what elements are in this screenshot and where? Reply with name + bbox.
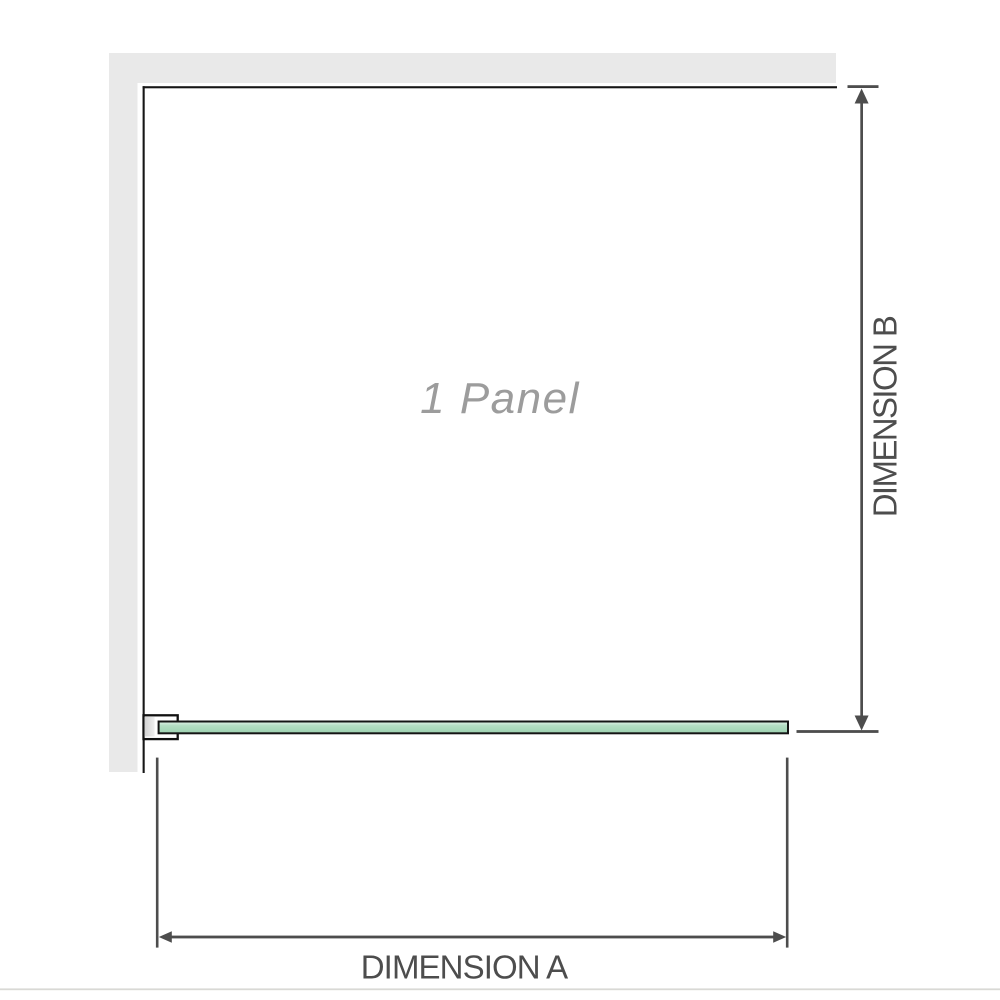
svg-text:DIMENSION B: DIMENSION B xyxy=(866,316,903,517)
svg-text:1 Panel: 1 Panel xyxy=(420,374,580,423)
svg-text:DIMENSION A: DIMENSION A xyxy=(361,948,568,985)
